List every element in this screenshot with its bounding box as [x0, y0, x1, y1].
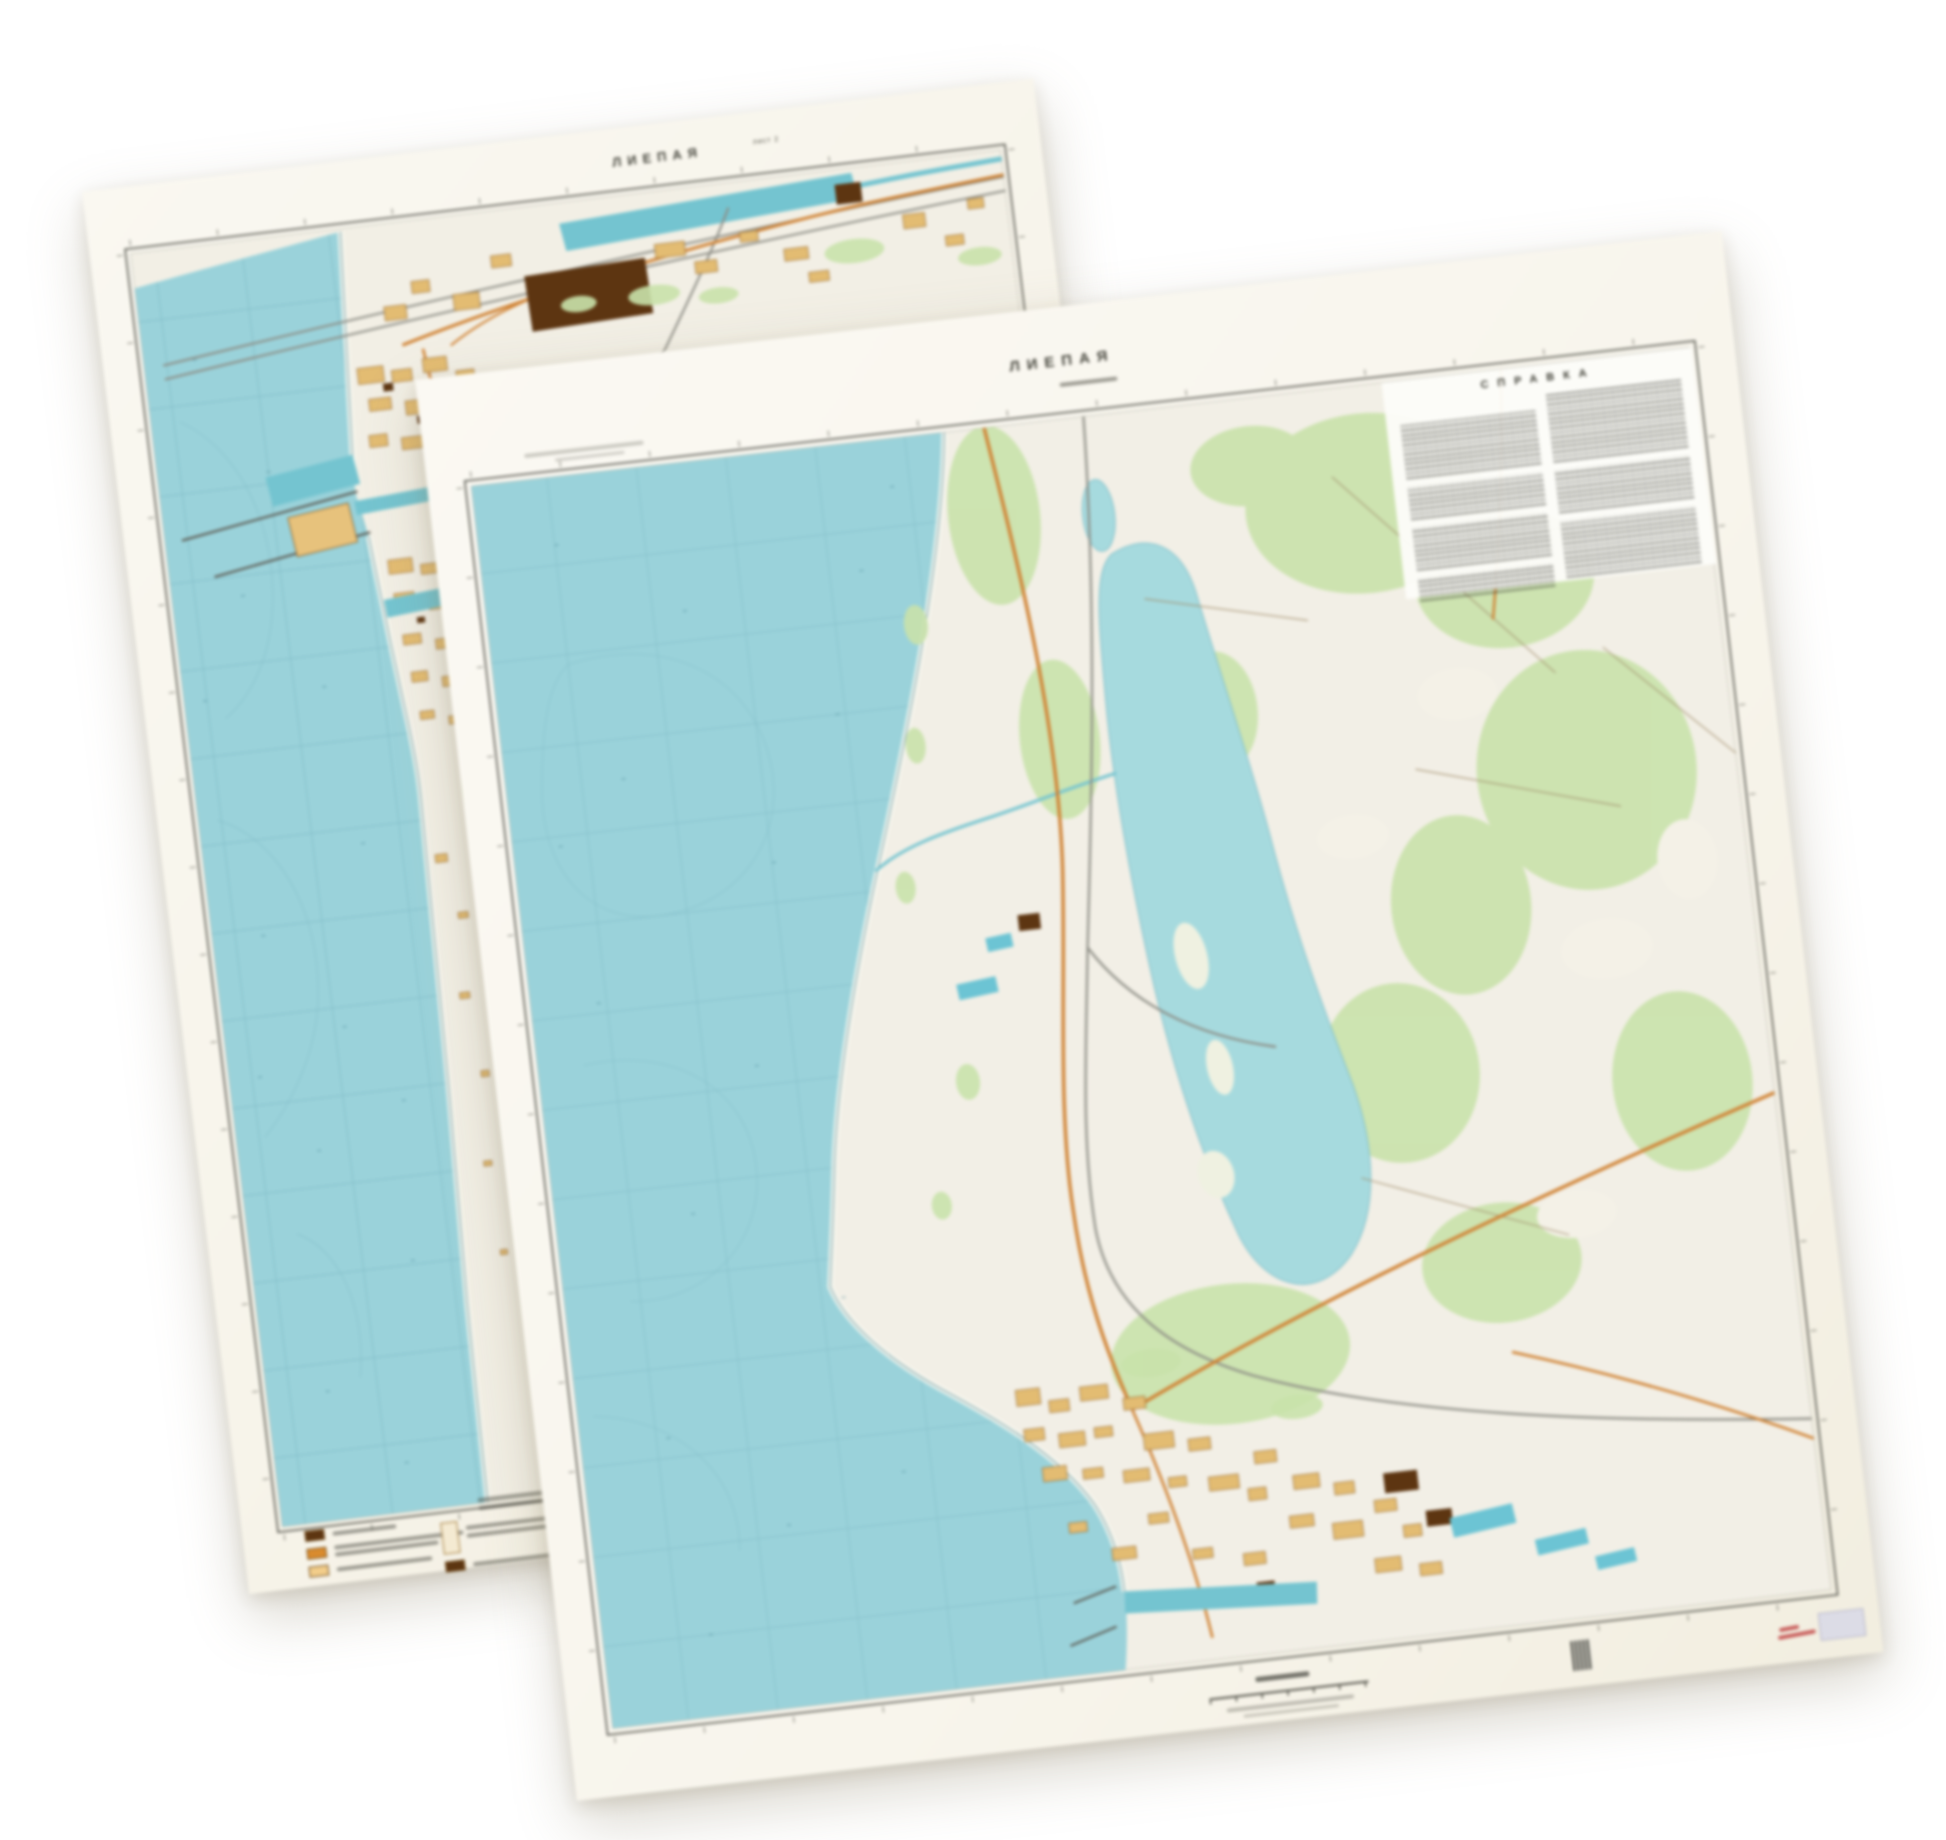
photo-canvas: ЛИЕПАЯ лист 2 — [0, 0, 1946, 1840]
map-sheet-front: ЛИЕПАЯ СПРАВКА — [415, 231, 1883, 1801]
coast-building — [1017, 913, 1041, 931]
info-column-1 — [1400, 409, 1555, 602]
small-dark-building — [834, 182, 862, 205]
legend-swatch-tall — [440, 1521, 461, 1555]
barcode-stamp — [1570, 1639, 1593, 1671]
legend-swatch-pale — [308, 1564, 329, 1577]
legend-swatch-darkbrown — [304, 1529, 325, 1542]
legend-swatch-darkbrown-2 — [445, 1559, 466, 1572]
info-column-2 — [1546, 379, 1702, 579]
info-block: СПРАВКА — [1382, 347, 1717, 599]
legend-label-placeholder — [337, 1556, 433, 1571]
legend-swatch-orange — [306, 1547, 327, 1560]
sticker-box — [1818, 1608, 1867, 1641]
